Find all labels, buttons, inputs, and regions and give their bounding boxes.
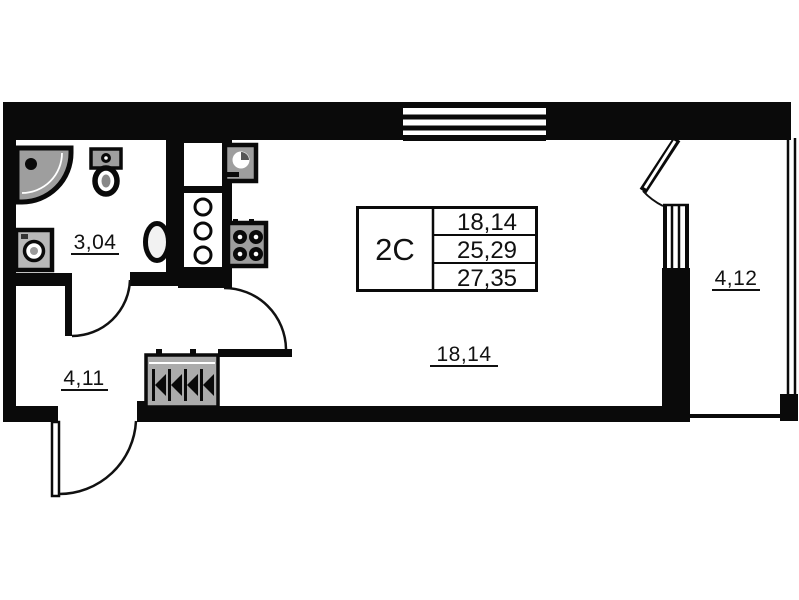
shower-tray-icon xyxy=(17,148,71,202)
balcony-door xyxy=(643,139,677,206)
fridge-cabinet-icon xyxy=(184,143,222,186)
entrance-door-leaf xyxy=(52,422,59,496)
balcony-door-leaf-inner xyxy=(645,141,675,188)
wall-bathroom-bottom xyxy=(3,273,72,286)
room-label-living: 18,14 xyxy=(436,343,491,366)
counter-knob-icons xyxy=(195,199,211,263)
washing-machine-icon xyxy=(16,230,52,270)
stamp-area-living: 18,14 xyxy=(457,209,517,236)
wall-bathroom-right xyxy=(166,140,180,286)
wall-top-right xyxy=(546,102,791,140)
floorplan-canvas: 2С 18,14 25,29 27,35 3,04 4,11 18,14 4,1… xyxy=(0,0,799,600)
bathroom-door xyxy=(65,280,130,336)
balcony-corner-pillar xyxy=(780,394,798,421)
stamp-area-with-balcony: 27,35 xyxy=(457,265,517,292)
living-room-door-swing-arc xyxy=(224,288,286,349)
wall-bottom-main xyxy=(137,406,690,422)
entrance-door-swing-arc xyxy=(59,421,136,494)
wall-top-left xyxy=(3,102,403,140)
balcony-window xyxy=(663,204,689,270)
living-room-door-leaf xyxy=(218,349,292,357)
entrance-door xyxy=(52,421,136,496)
living-room-door xyxy=(218,288,292,357)
bathroom-door-swing-arc xyxy=(72,280,130,336)
room-label-hallway: 4,11 xyxy=(63,367,104,390)
stamp-area-total: 25,29 xyxy=(457,237,517,264)
toilet-icon xyxy=(91,149,121,194)
stove-burners-icon xyxy=(228,219,266,266)
room-label-balcony: 4,12 xyxy=(715,267,758,290)
floorplan-drawing: 2С 18,14 25,29 27,35 3,04 4,11 18,14 4,1… xyxy=(0,0,799,600)
bathroom-door-leaf xyxy=(65,286,72,336)
shower-drain-dot xyxy=(25,158,37,170)
wardrobe-hangers-icon xyxy=(146,349,218,407)
balcony-door-swing-arc xyxy=(643,191,663,206)
kitchen-sink-icon xyxy=(225,145,256,181)
room-label-bathroom: 3,04 xyxy=(74,231,117,254)
top-window xyxy=(403,102,546,140)
wall-balcony-partition xyxy=(662,268,690,422)
stamp-unit-type: 2С xyxy=(375,232,415,267)
area-stamp-table: 2С 18,14 25,29 27,35 xyxy=(358,207,537,292)
sink-icon xyxy=(146,224,169,261)
wall-bottom-stub xyxy=(3,406,58,422)
